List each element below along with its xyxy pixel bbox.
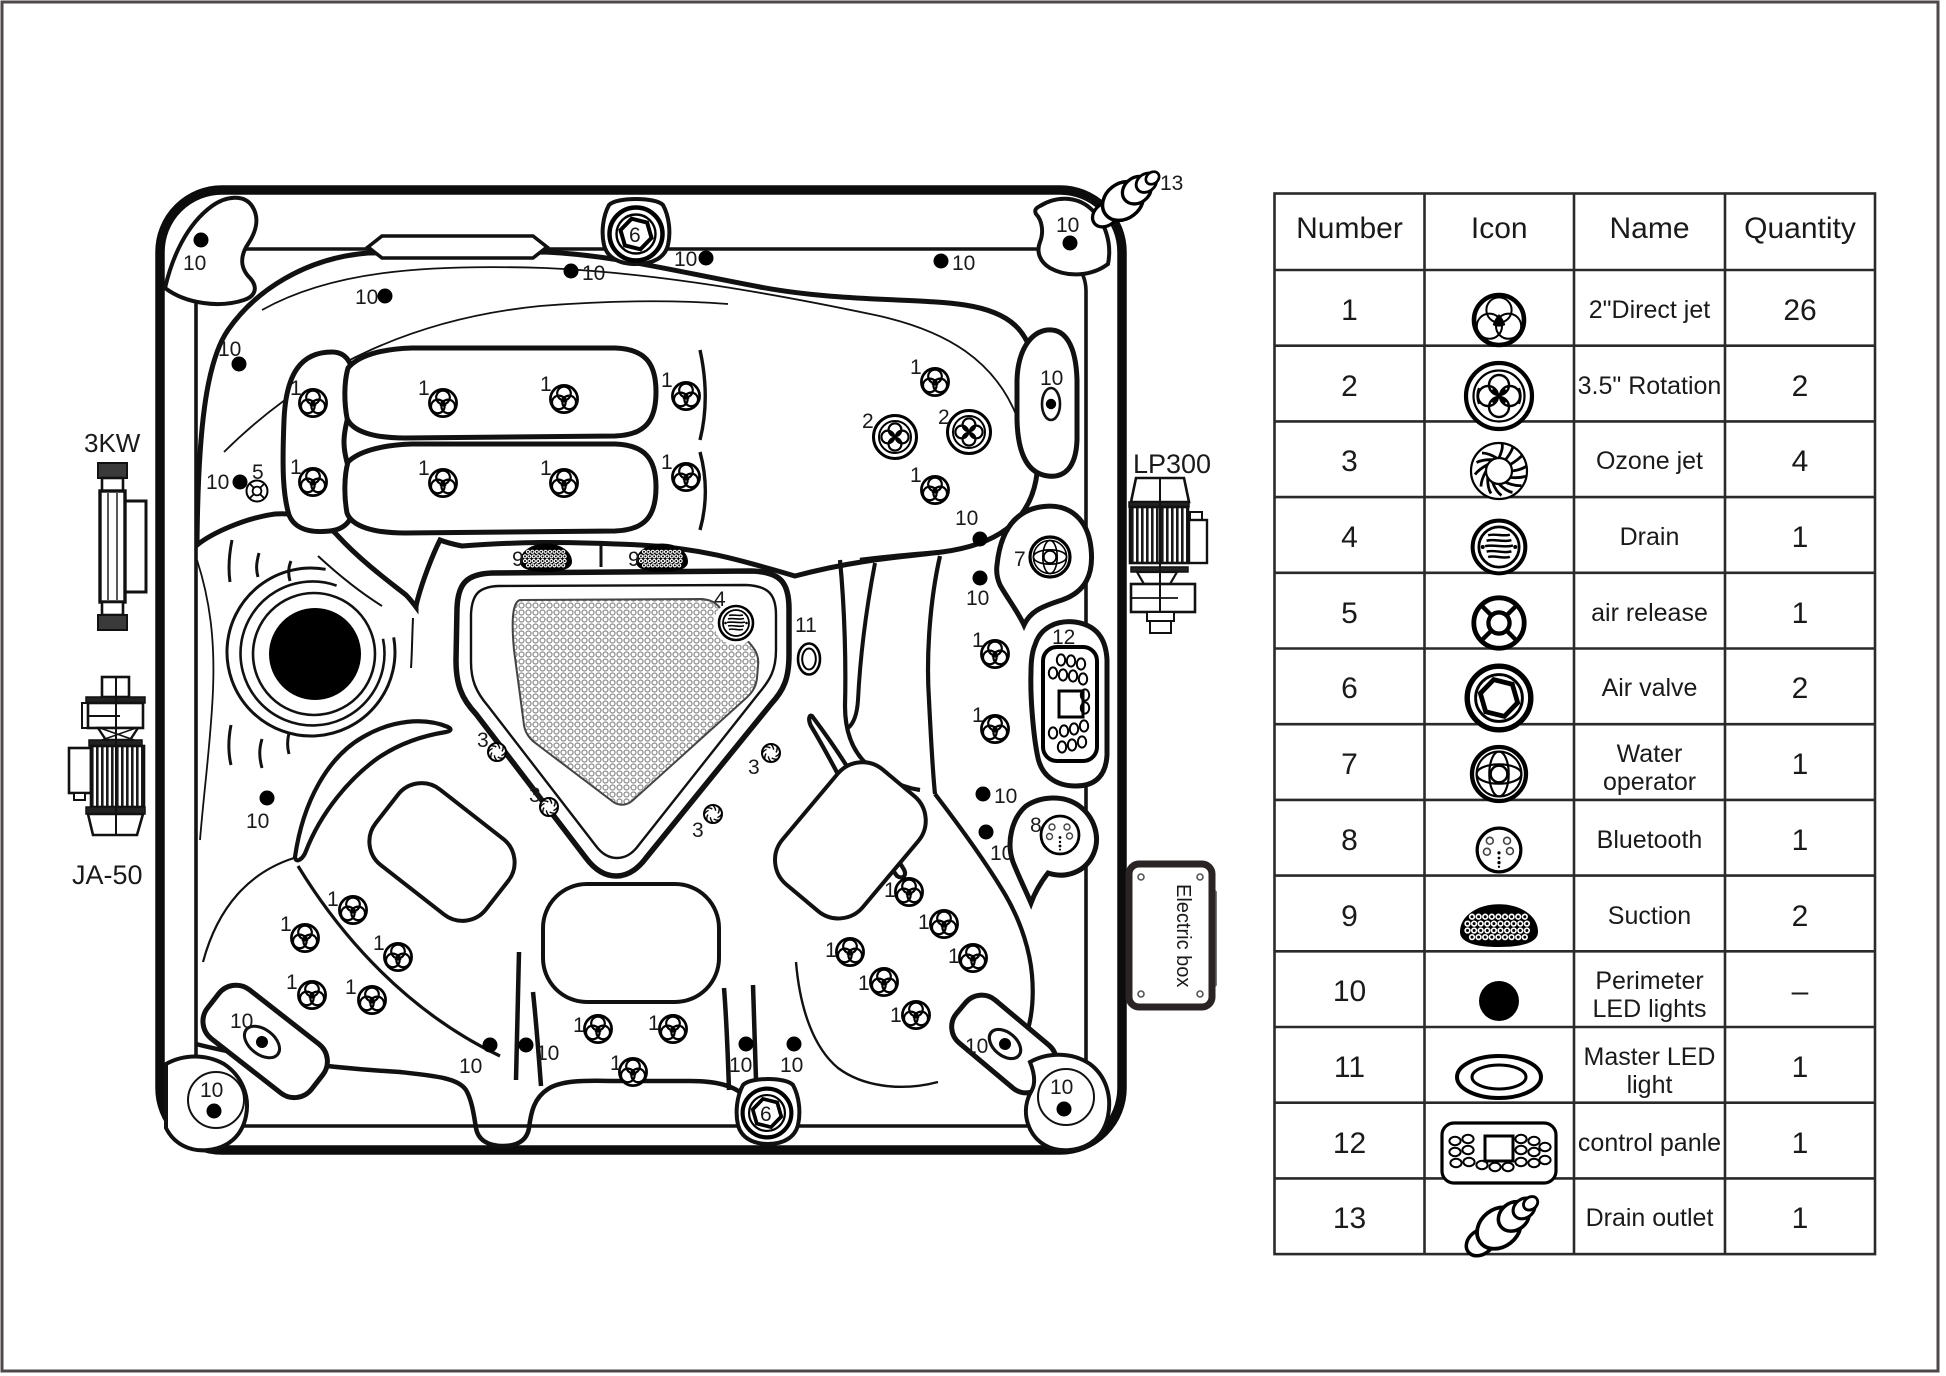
- svg-text:7: 7: [1341, 748, 1358, 781]
- svg-text:9: 9: [512, 548, 524, 571]
- svg-text:Master LED: Master LED: [1584, 1043, 1716, 1071]
- svg-text:1: 1: [345, 976, 357, 999]
- svg-text:1: 1: [286, 971, 298, 994]
- svg-text:3: 3: [529, 784, 541, 807]
- svg-text:control panle: control panle: [1578, 1129, 1721, 1157]
- svg-text:1: 1: [327, 888, 339, 911]
- svg-text:LP300: LP300: [1133, 449, 1211, 479]
- svg-text:1: 1: [280, 913, 292, 936]
- svg-text:Ozone jet: Ozone jet: [1596, 447, 1703, 475]
- svg-text:1: 1: [290, 377, 302, 400]
- svg-text:3: 3: [477, 729, 489, 752]
- svg-text:1: 1: [1792, 1127, 1809, 1160]
- svg-text:Icon: Icon: [1471, 212, 1528, 245]
- svg-text:Number: Number: [1296, 212, 1403, 245]
- svg-text:6: 6: [760, 1103, 772, 1126]
- svg-text:2: 2: [1792, 900, 1809, 933]
- svg-text:10: 10: [965, 1035, 988, 1058]
- svg-text:10: 10: [990, 842, 1013, 865]
- svg-text:1: 1: [972, 629, 984, 652]
- svg-text:1: 1: [573, 1014, 585, 1037]
- svg-text:1: 1: [918, 911, 930, 934]
- svg-text:3KW: 3KW: [84, 428, 141, 458]
- svg-text:10: 10: [1050, 1076, 1073, 1099]
- svg-text:1: 1: [825, 939, 837, 962]
- svg-text:1: 1: [648, 1012, 660, 1035]
- svg-text:5: 5: [1341, 597, 1358, 630]
- svg-text:1: 1: [884, 879, 896, 902]
- svg-text:10: 10: [536, 1042, 559, 1065]
- svg-text:1: 1: [910, 356, 922, 379]
- svg-text:1: 1: [540, 457, 552, 480]
- svg-text:1: 1: [910, 464, 922, 487]
- svg-text:3: 3: [1341, 445, 1358, 478]
- svg-text:2"Direct jet: 2"Direct jet: [1589, 296, 1710, 324]
- svg-text:1: 1: [858, 972, 870, 995]
- svg-text:10: 10: [230, 1010, 253, 1033]
- svg-text:9: 9: [628, 548, 640, 571]
- svg-text:10: 10: [1333, 975, 1366, 1008]
- svg-text:7: 7: [1014, 548, 1026, 571]
- svg-text:1: 1: [290, 456, 302, 479]
- svg-text:3.5" Rotation: 3.5" Rotation: [1578, 372, 1722, 400]
- svg-text:1: 1: [1792, 748, 1809, 781]
- svg-text:1: 1: [948, 945, 960, 968]
- svg-text:2: 2: [862, 410, 874, 433]
- svg-text:JA-50: JA-50: [72, 860, 143, 890]
- svg-text:4: 4: [1341, 521, 1358, 554]
- svg-text:Name: Name: [1609, 212, 1689, 245]
- svg-text:10: 10: [355, 286, 378, 309]
- svg-text:2: 2: [1341, 370, 1358, 403]
- svg-text:LED lights: LED lights: [1593, 995, 1707, 1023]
- svg-text:13: 13: [1160, 172, 1183, 195]
- svg-text:operator: operator: [1603, 768, 1696, 796]
- svg-text:12: 12: [1333, 1127, 1366, 1160]
- svg-text:12: 12: [1052, 626, 1075, 649]
- svg-text:Electric box: Electric box: [1172, 884, 1194, 987]
- svg-text:2: 2: [1792, 672, 1809, 705]
- svg-text:8: 8: [1030, 814, 1042, 837]
- svg-text:1: 1: [418, 377, 430, 400]
- svg-text:Drain outlet: Drain outlet: [1586, 1204, 1714, 1232]
- svg-text:1: 1: [418, 457, 430, 480]
- svg-text:9: 9: [1341, 900, 1358, 933]
- svg-text:4: 4: [714, 588, 726, 611]
- svg-text:1: 1: [1792, 597, 1809, 630]
- svg-text:Water: Water: [1617, 740, 1683, 768]
- svg-text:1: 1: [540, 373, 552, 396]
- svg-text:Bluetooth: Bluetooth: [1597, 826, 1703, 854]
- svg-text:1: 1: [373, 932, 385, 955]
- svg-text:–: –: [1792, 975, 1809, 1008]
- svg-text:2: 2: [1792, 370, 1809, 403]
- svg-text:1: 1: [610, 1052, 622, 1075]
- svg-text:2: 2: [938, 406, 950, 429]
- svg-text:13: 13: [1333, 1202, 1366, 1235]
- svg-text:1: 1: [972, 704, 984, 727]
- svg-text:3: 3: [748, 756, 760, 779]
- svg-text:4: 4: [1792, 445, 1809, 478]
- svg-text:3: 3: [692, 819, 704, 842]
- svg-text:1: 1: [890, 1004, 902, 1027]
- svg-text:10: 10: [966, 587, 989, 610]
- svg-text:10: 10: [582, 262, 605, 285]
- svg-text:10: 10: [994, 785, 1017, 808]
- svg-text:1: 1: [1792, 1051, 1809, 1084]
- svg-text:air release: air release: [1591, 599, 1708, 627]
- svg-text:10: 10: [206, 471, 229, 494]
- svg-text:10: 10: [1056, 214, 1079, 237]
- svg-text:1: 1: [661, 369, 673, 392]
- svg-text:10: 10: [200, 1079, 223, 1102]
- svg-text:6: 6: [629, 224, 641, 247]
- svg-text:Perimeter: Perimeter: [1595, 967, 1703, 995]
- svg-text:10: 10: [674, 248, 697, 271]
- svg-text:Air valve: Air valve: [1602, 674, 1698, 702]
- svg-text:1: 1: [661, 451, 673, 474]
- svg-text:Suction: Suction: [1608, 902, 1691, 930]
- svg-text:5: 5: [252, 461, 264, 484]
- svg-text:11: 11: [795, 614, 817, 637]
- svg-text:10: 10: [955, 507, 978, 530]
- svg-text:10: 10: [246, 810, 269, 833]
- svg-text:10: 10: [952, 252, 975, 275]
- svg-text:10: 10: [183, 252, 206, 275]
- svg-text:Drain: Drain: [1620, 523, 1680, 551]
- svg-text:10: 10: [459, 1055, 482, 1078]
- svg-text:1: 1: [1792, 824, 1809, 857]
- svg-text:1: 1: [1792, 1202, 1809, 1235]
- svg-text:1: 1: [1341, 294, 1358, 327]
- svg-text:6: 6: [1341, 672, 1358, 705]
- svg-text:10: 10: [780, 1054, 803, 1077]
- svg-text:26: 26: [1783, 294, 1816, 327]
- svg-text:1: 1: [1792, 521, 1809, 554]
- svg-text:11: 11: [1334, 1051, 1365, 1084]
- svg-text:8: 8: [1341, 824, 1358, 857]
- svg-text:Quantity: Quantity: [1744, 212, 1856, 245]
- svg-text:light: light: [1627, 1071, 1673, 1099]
- svg-text:10: 10: [729, 1054, 752, 1077]
- svg-text:10: 10: [1040, 367, 1063, 390]
